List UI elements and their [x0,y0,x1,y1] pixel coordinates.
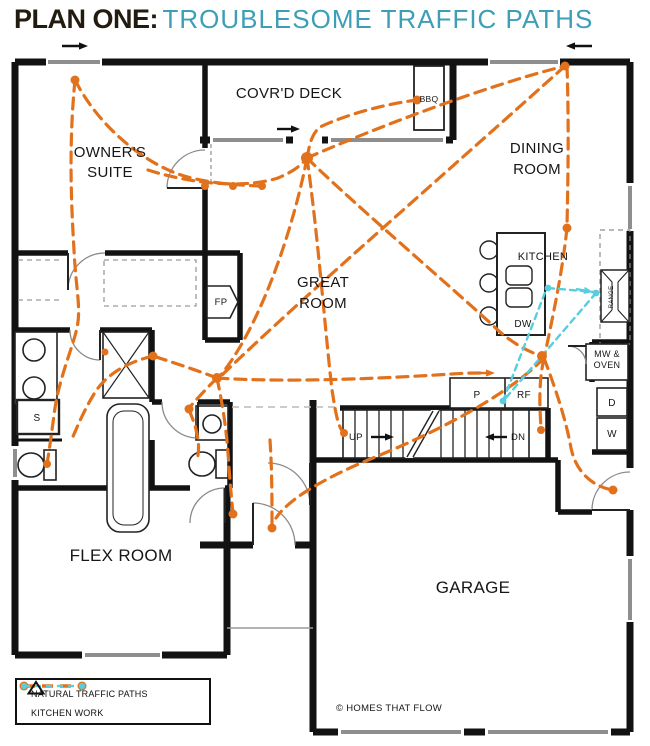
kitchen-work-dot [545,285,552,292]
traffic-dot [258,182,266,190]
traffic-dot [185,405,194,414]
label-owners-suite: OWNER'SSUITE [74,144,146,181]
work-triangle-icon [27,680,45,695]
closet-shelving [104,260,196,306]
toilet-icon [189,452,215,476]
sink-icon [23,339,45,361]
sink-icon [203,415,221,433]
traffic-dot [537,426,545,434]
label-dryer: D [608,398,616,409]
floor-plan-page: PLAN ONE: TROUBLESOME TRAFFIC PATHS [0,0,650,746]
label-garage: GARAGE [436,578,511,597]
traffic-path-15 [153,356,217,378]
traffic-dot [229,510,238,519]
path-arrow-icon [479,369,495,376]
direction-arrow-icon [277,125,300,132]
closet-rod [18,260,62,300]
label-mw-oven: MW &OVEN [594,349,621,370]
kitchen-work-dot [500,398,507,405]
path-arrow-icon [576,287,593,294]
floor-plan-svg: OWNER'SSUITECOVR'D DECKBBQDININGROOMKITC… [0,0,650,746]
label-up: UP [349,432,363,443]
sink-icon [23,377,45,399]
traffic-dot [43,460,51,468]
label-shower: S [34,413,41,424]
label-fp: FP [215,297,228,308]
traffic-dot [212,373,222,383]
sink-basin-icon [506,288,532,307]
bathtub-inner [113,411,143,525]
toilet-tank-icon [216,450,228,478]
toilet-icon [18,453,44,477]
traffic-dot [268,524,277,533]
label-dn: DN [511,432,525,443]
direction-arrow-icon [62,42,88,49]
traffic-dot [71,76,80,85]
legend-kitchen-label: KITCHEN WORK [31,708,103,718]
traffic-path-7 [220,158,307,376]
label-bbq: BBQ [420,94,439,104]
direction-arrow-icon [566,42,592,49]
label-washer: W [607,429,617,440]
traffic-dot [340,429,348,437]
label-covrd-deck: COVR'D DECK [236,85,342,102]
kitchen-work-dot [593,290,600,297]
traffic-dot [563,224,572,233]
legend-kitchen-row: KITCHEN WORK [23,703,203,722]
label-range: RANGE [609,286,615,309]
stairs [343,410,529,458]
traffic-dot [609,486,618,495]
traffic-dot [149,352,158,361]
label-flex-room: FLEX ROOM [70,546,173,565]
label-rf: RF [517,390,531,401]
traffic-dot [102,349,109,356]
traffic-path-17 [217,373,484,380]
traffic-dot [301,152,313,164]
traffic-dot [537,351,547,361]
traffic-path-20 [270,440,272,526]
legend: NATURAL TRAFFIC PATHS KITCHEN WORK [15,678,211,725]
label-kitchen: KITCHEN [518,251,568,263]
label-pantry: P [474,390,481,401]
traffic-dot [201,182,209,190]
traffic-path-9 [567,66,568,226]
range-icon [601,270,629,322]
label-dw: DW [514,319,532,330]
traffic-dot [561,62,570,71]
label-dining-room: DININGROOM [510,140,564,178]
label-copyright: © HOMES THAT FLOW [336,703,442,714]
sink-basin-icon [506,266,532,285]
traffic-dot [229,182,237,190]
